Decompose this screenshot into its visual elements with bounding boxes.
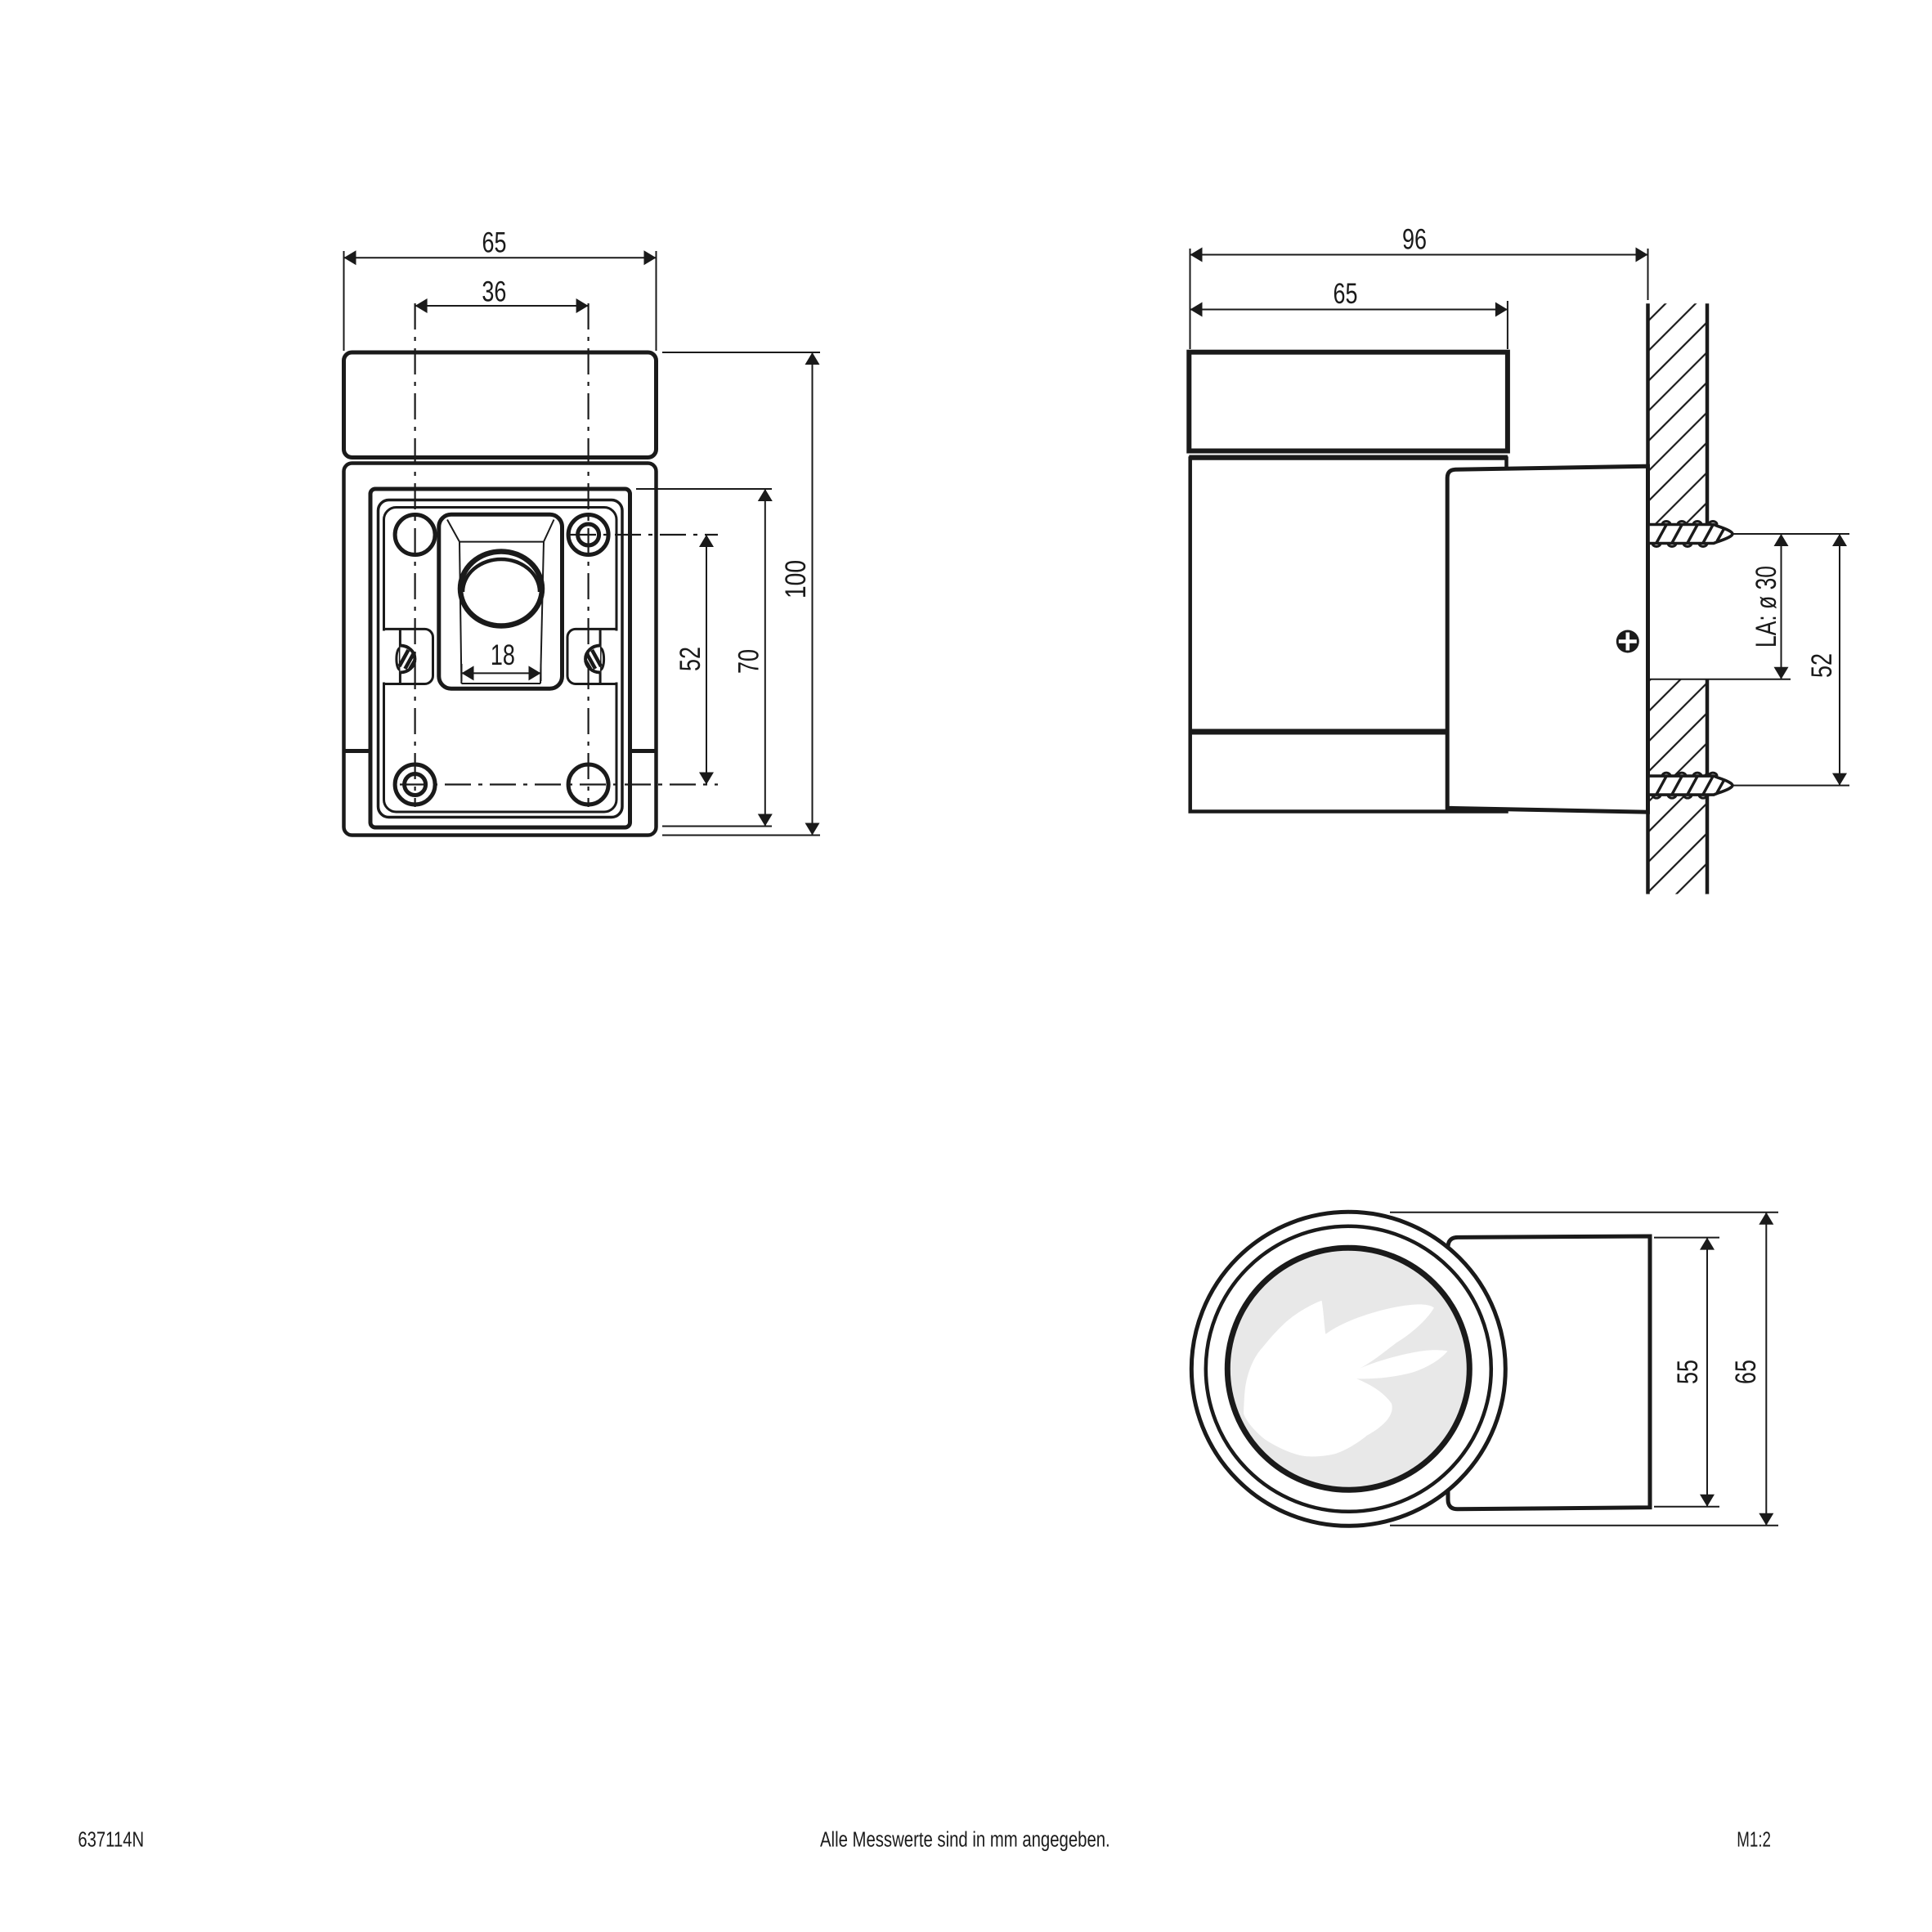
svg-text:65: 65: [1334, 277, 1358, 310]
svg-text:65: 65: [482, 226, 507, 259]
svg-text:65: 65: [1729, 1360, 1762, 1384]
svg-text:100: 100: [779, 560, 812, 598]
svg-text:96: 96: [1402, 223, 1427, 256]
svg-text:52: 52: [1805, 653, 1838, 678]
svg-text:36: 36: [482, 276, 506, 308]
svg-text:55: 55: [1671, 1360, 1704, 1384]
svg-text:Alle Messwerte sind in mm ange: Alle Messwerte sind in mm angegeben.: [820, 1827, 1110, 1852]
svg-text:637114N: 637114N: [78, 1827, 144, 1852]
svg-text:70: 70: [733, 649, 765, 674]
svg-text:52: 52: [674, 647, 706, 671]
svg-text:18: 18: [491, 639, 515, 671]
svg-text:M1:2: M1:2: [1737, 1827, 1771, 1852]
svg-text:LA: ø 30: LA: ø 30: [1750, 566, 1782, 648]
